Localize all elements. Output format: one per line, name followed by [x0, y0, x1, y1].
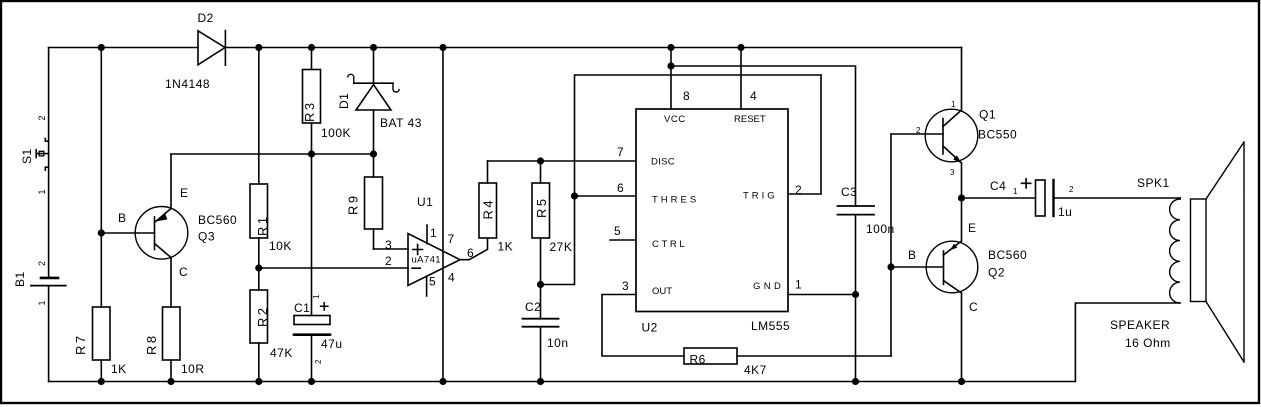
svg-text:10n: 10n: [547, 336, 569, 350]
svg-text:OUT: OUT: [652, 286, 672, 297]
svg-text:BC560: BC560: [198, 213, 237, 227]
svg-text:R9: R9: [346, 193, 361, 215]
svg-text:E: E: [968, 221, 977, 235]
svg-text:C1: C1: [294, 301, 310, 315]
svg-text:TRIG: TRIG: [743, 191, 778, 202]
svg-text:GND: GND: [753, 281, 784, 292]
svg-text:1: 1: [795, 278, 802, 292]
svg-text:C3: C3: [841, 185, 857, 199]
svg-text:2: 2: [37, 261, 47, 266]
svg-text:R4: R4: [481, 198, 496, 220]
svg-text:47K: 47K: [270, 346, 293, 360]
svg-text:47u: 47u: [321, 337, 343, 351]
svg-text:1: 1: [312, 294, 321, 299]
svg-text:R1: R1: [255, 214, 270, 236]
svg-text:10R: 10R: [181, 362, 205, 376]
svg-text:100n: 100n: [866, 222, 895, 236]
svg-text:D2: D2: [198, 11, 214, 25]
svg-text:B1: B1: [13, 271, 27, 287]
svg-text:1: 1: [951, 100, 956, 109]
svg-text:CTRL: CTRL: [652, 239, 687, 250]
svg-text:2: 2: [314, 359, 323, 364]
svg-text:C: C: [969, 300, 978, 314]
svg-text:2: 2: [916, 126, 921, 135]
svg-text:1u: 1u: [1058, 205, 1072, 219]
svg-text:S1: S1: [20, 148, 34, 164]
svg-text:Q3: Q3: [198, 230, 215, 244]
svg-text:6: 6: [617, 181, 624, 195]
svg-text:R3: R3: [302, 100, 317, 122]
svg-text:1K: 1K: [111, 362, 127, 376]
svg-text:R8: R8: [144, 333, 159, 355]
svg-text:6: 6: [467, 246, 474, 260]
svg-text:3: 3: [950, 168, 955, 177]
svg-text:3: 3: [385, 238, 392, 252]
svg-text:2: 2: [37, 115, 47, 120]
svg-text:27K: 27K: [550, 240, 573, 254]
svg-text:C4: C4: [990, 179, 1006, 193]
svg-text:1: 1: [37, 189, 47, 194]
svg-text:C2: C2: [525, 300, 541, 314]
svg-text:U2: U2: [642, 321, 658, 335]
svg-text:Q1: Q1: [979, 108, 996, 122]
svg-text:SPEAKER: SPEAKER: [1110, 318, 1170, 332]
svg-text:THRES: THRES: [652, 195, 699, 206]
svg-text:SPK1: SPK1: [1137, 176, 1170, 190]
svg-text:R6: R6: [690, 353, 706, 367]
svg-text:1: 1: [37, 300, 47, 305]
svg-text:4: 4: [448, 271, 455, 285]
svg-text:R7: R7: [73, 333, 88, 355]
svg-text:2: 2: [795, 183, 802, 197]
svg-text:1K: 1K: [498, 240, 514, 254]
svg-text:10K: 10K: [269, 239, 292, 253]
svg-text:C: C: [179, 265, 188, 279]
svg-text:DISC: DISC: [651, 157, 675, 168]
svg-text:U1: U1: [417, 195, 433, 209]
svg-text:B: B: [908, 248, 917, 262]
svg-text:8: 8: [683, 89, 690, 103]
svg-text:5: 5: [429, 275, 436, 289]
svg-text:VCC: VCC: [664, 114, 686, 125]
svg-text:uA741: uA741: [412, 255, 441, 266]
svg-text:R5: R5: [534, 196, 549, 218]
svg-text:D1: D1: [337, 93, 351, 109]
svg-text:5: 5: [614, 224, 621, 238]
svg-text:1: 1: [1013, 187, 1018, 196]
svg-text:7: 7: [448, 232, 455, 246]
svg-text:7: 7: [617, 145, 624, 159]
svg-text:E: E: [180, 186, 189, 200]
svg-text:1N4148: 1N4148: [165, 77, 210, 91]
svg-text:3: 3: [622, 279, 629, 293]
svg-text:4K7: 4K7: [744, 363, 767, 377]
svg-text:BC550: BC550: [978, 128, 1017, 142]
svg-text:16 Ohm: 16 Ohm: [1125, 336, 1171, 350]
svg-text:BC560: BC560: [988, 248, 1027, 262]
svg-text:2: 2: [1069, 185, 1074, 194]
svg-text:2: 2: [385, 254, 392, 268]
svg-text:B: B: [118, 211, 127, 225]
svg-text:LM555: LM555: [751, 319, 790, 333]
svg-text:4: 4: [750, 89, 757, 103]
svg-text:R2: R2: [255, 305, 270, 327]
svg-text:RESET: RESET: [734, 114, 766, 125]
svg-text:Q2: Q2: [988, 266, 1005, 280]
svg-text:BAT 43: BAT 43: [380, 116, 422, 130]
svg-text:100K: 100K: [321, 126, 351, 140]
svg-text:1: 1: [430, 226, 437, 240]
